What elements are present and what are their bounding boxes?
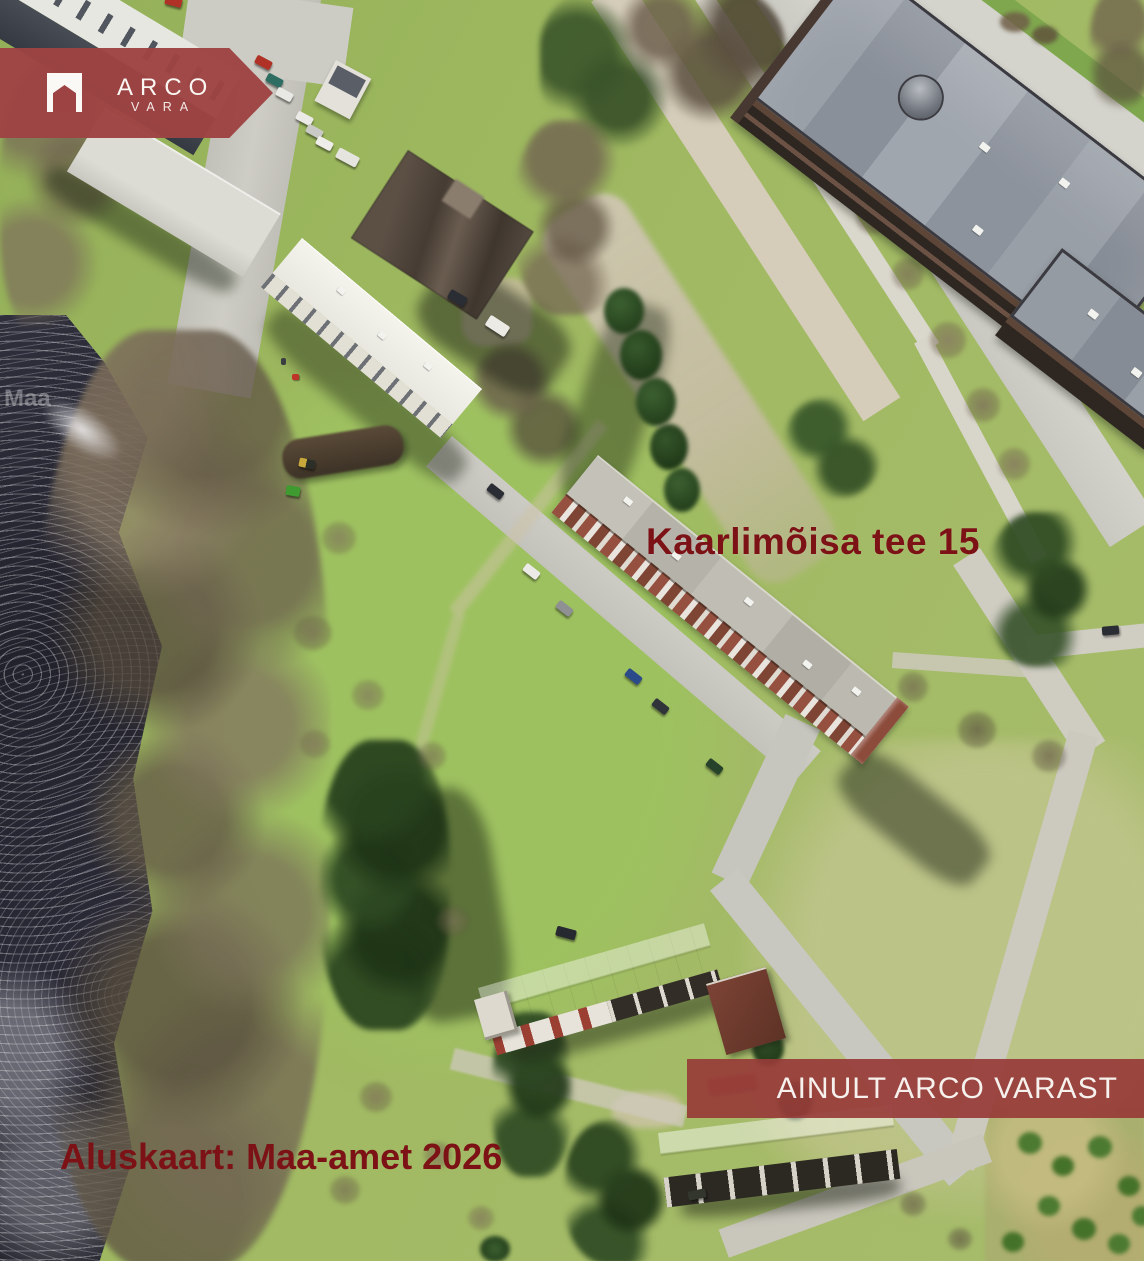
trailer-roof-panel xyxy=(328,65,366,98)
orchard-tree xyxy=(1038,1196,1060,1216)
tree xyxy=(620,330,662,380)
tree xyxy=(966,388,1000,422)
tree xyxy=(930,322,966,358)
tree xyxy=(650,424,688,470)
tree xyxy=(664,468,700,512)
exclusive-badge: AINULT ARCO VARAST xyxy=(687,1059,1144,1118)
address-label: Kaarlimõisa tee 15 xyxy=(646,521,980,563)
aerial-map: Maa ARCO VARA Kaarlimõisa tee 15 AINULT … xyxy=(0,0,1144,1261)
bushes xyxy=(1000,12,1030,32)
tree xyxy=(636,378,676,426)
orchard-tree xyxy=(1072,1218,1096,1240)
tree xyxy=(436,906,470,936)
tree xyxy=(1032,740,1066,772)
tree xyxy=(418,742,446,770)
tree-cluster xyxy=(1090,0,1144,110)
bushes xyxy=(1032,26,1058,44)
tree-cluster xyxy=(320,740,450,1030)
tree xyxy=(998,448,1030,480)
tree xyxy=(604,288,644,334)
arco-house-cutout xyxy=(53,85,76,112)
tree xyxy=(898,672,928,702)
orchard-tree xyxy=(1088,1136,1112,1158)
car xyxy=(164,0,183,8)
tree xyxy=(360,1082,392,1112)
tree-cluster xyxy=(785,398,880,498)
car xyxy=(315,136,334,152)
tree xyxy=(294,616,332,650)
arco-logo-subtext: VARA xyxy=(131,100,196,114)
tree xyxy=(352,680,384,710)
orchard-tree xyxy=(1018,1132,1042,1154)
tree xyxy=(958,712,996,748)
tree xyxy=(468,1206,494,1230)
lawnmower xyxy=(292,374,299,380)
basemap-watermark: Maa xyxy=(4,385,51,413)
tree xyxy=(480,1236,510,1261)
tree xyxy=(900,1192,926,1216)
orchard-tree xyxy=(1002,1232,1024,1252)
orchard-tree xyxy=(1118,1176,1140,1196)
basemap-credit: Aluskaart: Maa-amet 2026 xyxy=(60,1136,502,1178)
arco-house-icon xyxy=(47,73,82,112)
orchard-tree xyxy=(1108,1234,1130,1254)
tree-cluster xyxy=(988,512,1103,667)
tree xyxy=(330,1176,360,1204)
tree xyxy=(300,730,330,758)
tree xyxy=(322,522,356,554)
tree xyxy=(948,1228,972,1250)
orchard-tree xyxy=(1052,1156,1074,1176)
van xyxy=(335,147,360,168)
car xyxy=(1102,625,1120,635)
tree-cluster xyxy=(515,120,625,315)
arco-logo-text: ARCO xyxy=(117,74,214,102)
person xyxy=(281,358,286,365)
